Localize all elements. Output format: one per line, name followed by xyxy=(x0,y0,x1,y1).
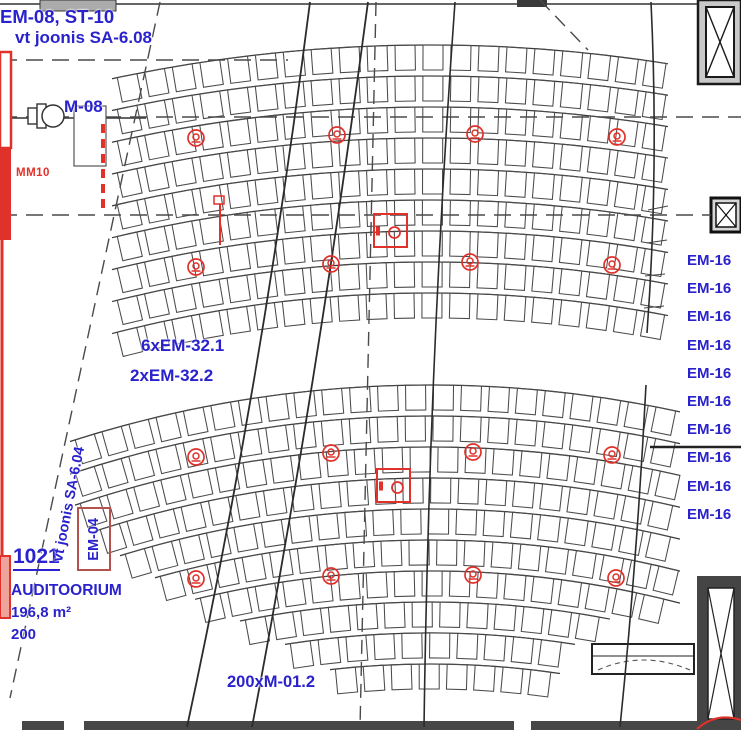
seat xyxy=(283,237,305,264)
seat xyxy=(450,231,471,256)
seat xyxy=(228,87,251,114)
seat xyxy=(485,479,507,505)
seat xyxy=(395,45,415,70)
seat xyxy=(560,82,582,109)
seat-row-line xyxy=(112,262,668,302)
seat xyxy=(464,541,485,567)
seat xyxy=(283,579,306,607)
seat xyxy=(290,641,313,669)
seat xyxy=(134,482,160,511)
seat xyxy=(532,297,554,324)
seat xyxy=(505,78,526,104)
seat xyxy=(624,433,648,461)
label-em04: EM-04 xyxy=(86,518,102,561)
seat xyxy=(450,138,471,163)
seat xyxy=(117,74,142,102)
speaker-symbol xyxy=(470,448,476,454)
seat xyxy=(200,594,225,623)
speaker-symbol xyxy=(613,574,619,580)
seat xyxy=(477,232,498,258)
seat xyxy=(615,150,638,178)
seat xyxy=(145,226,170,255)
em16-label: EM-16 xyxy=(687,506,731,523)
seat xyxy=(440,602,461,627)
seat xyxy=(614,213,637,241)
seat xyxy=(373,510,394,536)
speaker-symbol xyxy=(465,444,481,460)
seat-row-line xyxy=(330,664,560,673)
seat xyxy=(145,195,170,223)
seat xyxy=(456,509,477,535)
seat xyxy=(505,140,526,166)
seat xyxy=(546,547,569,574)
seat xyxy=(648,501,673,530)
seat xyxy=(538,640,561,667)
seat xyxy=(567,487,590,515)
seat xyxy=(533,142,555,169)
floor-box-symbol xyxy=(392,482,403,493)
seat xyxy=(349,418,371,444)
seat xyxy=(511,637,533,664)
seat xyxy=(450,169,471,194)
seat xyxy=(200,60,223,88)
seat xyxy=(449,571,470,597)
seat xyxy=(200,154,224,182)
seat xyxy=(587,209,610,236)
seat xyxy=(655,471,680,500)
red-wall-marker xyxy=(0,556,10,618)
seat xyxy=(317,513,339,540)
seat xyxy=(601,461,625,489)
seat xyxy=(592,522,616,550)
speaker-symbol xyxy=(188,571,204,587)
speaker-symbol xyxy=(609,261,615,267)
seat xyxy=(451,45,472,70)
seat xyxy=(531,576,554,603)
seat xyxy=(477,572,498,598)
seat xyxy=(651,407,676,436)
seat xyxy=(227,181,250,209)
seat xyxy=(283,81,305,108)
m08-device-icon xyxy=(42,105,64,127)
seat xyxy=(533,111,555,138)
seat xyxy=(321,419,343,446)
seat xyxy=(559,238,582,265)
seat xyxy=(266,425,289,452)
seat xyxy=(394,571,415,597)
seat xyxy=(367,77,388,103)
seat xyxy=(569,425,592,452)
seat xyxy=(289,516,312,543)
seat xyxy=(450,107,471,132)
seat xyxy=(488,386,509,412)
seat xyxy=(282,268,305,295)
seat xyxy=(263,488,286,516)
seat xyxy=(505,171,527,197)
seat xyxy=(234,524,258,552)
seat xyxy=(422,200,442,225)
seat xyxy=(271,456,294,483)
seat xyxy=(156,413,181,442)
seat xyxy=(478,77,499,103)
seat xyxy=(533,49,555,75)
seat xyxy=(538,515,561,542)
seat xyxy=(338,233,359,259)
seat xyxy=(560,144,582,171)
seat xyxy=(437,540,457,565)
seat xyxy=(515,388,537,415)
speaker-symbol xyxy=(323,445,339,461)
dashed-diagonal xyxy=(540,0,588,50)
seat xyxy=(520,451,542,478)
seat xyxy=(338,264,360,290)
seat xyxy=(574,457,597,485)
seat xyxy=(483,510,505,536)
seat xyxy=(129,419,155,448)
seat xyxy=(504,264,526,290)
em16-label: EM-16 xyxy=(687,365,731,382)
seat xyxy=(587,147,610,174)
seat xyxy=(172,221,196,249)
em16-label: EM-16 xyxy=(687,252,731,269)
seat xyxy=(242,554,266,582)
floor-plan-viewport[interactable]: EM-08, ST-10 vt joonis SA-6.08 M-08 MM10… xyxy=(0,0,741,730)
stair-tread xyxy=(647,240,667,243)
seat xyxy=(117,264,142,293)
seat xyxy=(255,115,278,142)
seat xyxy=(172,64,196,92)
seat xyxy=(640,311,664,339)
seat xyxy=(236,492,260,520)
seat xyxy=(505,109,526,135)
red-wall-marker xyxy=(0,52,11,148)
seat xyxy=(491,542,513,568)
seat xyxy=(227,212,250,240)
seat-row-line xyxy=(112,293,668,334)
seat xyxy=(255,209,278,236)
seat xyxy=(433,385,453,410)
seat xyxy=(532,173,554,200)
seat xyxy=(172,190,196,218)
seat xyxy=(179,535,204,564)
seat xyxy=(328,605,350,632)
seat xyxy=(423,76,443,101)
seat xyxy=(488,417,509,443)
label-m08: M-08 xyxy=(64,98,103,116)
seat xyxy=(310,297,332,324)
em16-label: EM-16 xyxy=(687,478,731,495)
seat xyxy=(504,574,526,601)
seat xyxy=(619,527,643,555)
seat xyxy=(311,204,333,231)
seat xyxy=(614,182,637,210)
seat xyxy=(532,266,554,293)
seat xyxy=(478,46,499,72)
seat xyxy=(423,169,443,194)
seat xyxy=(228,588,252,616)
beam xyxy=(592,644,694,674)
seat xyxy=(319,482,341,509)
em16-label: EM-16 xyxy=(687,393,731,410)
seat xyxy=(145,163,169,191)
speaker-symbol xyxy=(334,131,340,137)
aisle-curve xyxy=(647,2,654,333)
seat xyxy=(422,293,442,318)
seat xyxy=(450,76,471,101)
seat xyxy=(431,478,451,503)
seat xyxy=(145,258,170,287)
seat xyxy=(367,170,388,196)
seat xyxy=(615,57,638,84)
seat xyxy=(626,560,651,589)
seat xyxy=(318,638,341,665)
speaker-symbol xyxy=(193,453,199,459)
seat xyxy=(338,574,360,601)
seat xyxy=(540,484,563,511)
seat xyxy=(102,458,128,488)
em16-label: EM-16 xyxy=(687,308,731,325)
seat xyxy=(199,311,223,339)
seat xyxy=(457,633,478,659)
seat xyxy=(339,47,360,73)
seat xyxy=(409,540,429,565)
seat xyxy=(335,667,357,694)
seat xyxy=(261,520,285,548)
seat xyxy=(255,271,278,298)
seat xyxy=(570,394,593,421)
bottom-wall xyxy=(84,721,514,730)
seat xyxy=(641,249,665,277)
seat xyxy=(144,290,169,319)
seat xyxy=(378,385,399,411)
seat xyxy=(394,231,414,256)
speaker-symbol xyxy=(188,449,204,465)
seat xyxy=(621,496,645,524)
seat xyxy=(423,138,443,163)
seat xyxy=(245,616,269,644)
em16-label: EM-16 xyxy=(687,337,731,354)
seat xyxy=(206,529,231,558)
seat xyxy=(172,284,196,312)
label-2xem322: 2xEM-32.2 xyxy=(130,367,213,385)
seat xyxy=(433,416,453,441)
seat xyxy=(160,571,186,600)
seat xyxy=(532,235,554,262)
label-mm10: MM10 xyxy=(16,167,50,179)
em16-label: EM-16 xyxy=(687,421,731,438)
seat xyxy=(363,665,385,691)
seat xyxy=(548,610,571,638)
aisle-curve xyxy=(187,2,310,727)
seat xyxy=(188,469,213,498)
seat xyxy=(615,88,638,115)
seat xyxy=(505,233,527,259)
seat xyxy=(477,294,498,320)
seat xyxy=(129,451,155,480)
seat xyxy=(597,429,621,457)
seat xyxy=(403,478,423,503)
label-vt-joonis-sa608: vt joonis SA-6.08 xyxy=(15,29,152,47)
seat xyxy=(423,107,443,132)
seat xyxy=(367,46,388,72)
seat xyxy=(492,449,514,475)
seat xyxy=(532,204,554,231)
label-200xm012: 200xM-01.2 xyxy=(227,674,315,691)
seat xyxy=(513,481,535,508)
seat xyxy=(311,141,333,167)
seat xyxy=(227,275,250,303)
seat xyxy=(311,79,333,105)
floor-box-symbol xyxy=(379,482,383,491)
seat xyxy=(559,300,582,327)
seat xyxy=(243,460,267,488)
seat xyxy=(145,68,169,96)
seat xyxy=(558,580,581,608)
seat xyxy=(338,295,360,321)
seat xyxy=(145,100,169,128)
bottom-wall xyxy=(22,721,64,730)
seat xyxy=(187,565,212,594)
seat xyxy=(401,509,421,534)
seat xyxy=(518,544,540,571)
seat xyxy=(586,303,609,330)
seat xyxy=(460,416,481,442)
floor-box-symbol xyxy=(376,227,380,236)
seat xyxy=(542,422,565,449)
seat xyxy=(588,54,611,81)
seat xyxy=(227,150,250,177)
seat xyxy=(366,232,387,258)
seat xyxy=(325,543,347,570)
seat xyxy=(211,434,235,462)
floor-plan-canvas xyxy=(0,0,741,730)
seat xyxy=(504,295,526,321)
seat xyxy=(501,667,523,694)
seat xyxy=(412,602,432,627)
seat xyxy=(586,272,609,299)
room-name: AUDITOORIUM xyxy=(11,583,122,599)
seat xyxy=(199,279,223,307)
seat xyxy=(266,394,289,421)
seat xyxy=(346,635,368,662)
seat xyxy=(547,453,570,480)
seat xyxy=(597,397,621,425)
seat xyxy=(585,584,609,612)
seat xyxy=(494,604,516,631)
seat xyxy=(384,602,405,628)
seat xyxy=(614,276,638,304)
seat xyxy=(394,293,415,318)
seat xyxy=(255,53,278,80)
seat xyxy=(211,402,235,430)
em16-label: EM-16 xyxy=(687,280,731,297)
seat xyxy=(311,173,333,199)
seat xyxy=(117,327,142,356)
seat xyxy=(594,491,618,519)
em16-label: EM-16 xyxy=(687,449,731,466)
seat xyxy=(395,107,415,132)
seat xyxy=(587,241,610,268)
seat xyxy=(560,175,582,202)
seat xyxy=(450,200,471,225)
seat xyxy=(458,478,479,504)
seat xyxy=(200,91,223,119)
seat xyxy=(102,426,128,455)
seat xyxy=(565,518,588,546)
seat xyxy=(395,76,415,101)
seat xyxy=(377,416,398,442)
seat xyxy=(543,391,566,418)
seat xyxy=(510,512,532,539)
seat xyxy=(125,549,151,579)
seat xyxy=(172,158,196,186)
seat-row-line xyxy=(112,107,668,142)
seat xyxy=(559,269,582,296)
seat xyxy=(145,131,169,159)
seat xyxy=(560,51,582,78)
seat xyxy=(474,665,496,691)
seat xyxy=(423,45,443,70)
seat xyxy=(588,85,611,112)
seat xyxy=(394,200,414,225)
seat xyxy=(575,614,599,642)
seat xyxy=(419,664,439,689)
speaker-symbol xyxy=(328,572,334,578)
seat xyxy=(641,280,665,308)
seat xyxy=(600,555,624,583)
room-capacity: 200 xyxy=(11,627,36,643)
seat xyxy=(422,571,442,596)
seat xyxy=(521,607,544,634)
seat xyxy=(255,84,278,111)
seat xyxy=(227,118,250,145)
bottom-wall xyxy=(531,721,697,730)
seat xyxy=(651,438,676,467)
aisle-curve xyxy=(252,2,368,727)
seat xyxy=(395,138,415,163)
seat xyxy=(573,551,597,579)
seat xyxy=(298,453,321,480)
seat xyxy=(255,178,278,205)
seat xyxy=(354,448,375,474)
seat xyxy=(395,169,415,194)
seat xyxy=(366,572,387,598)
m08-device-icon xyxy=(28,108,37,124)
seat xyxy=(587,178,610,205)
seat-row-line xyxy=(112,138,668,174)
seat xyxy=(406,385,426,410)
seat xyxy=(467,603,488,629)
label-em08-st10: EM-08, ST-10 xyxy=(0,7,114,26)
seat xyxy=(367,108,388,134)
seat-row-line xyxy=(70,385,680,442)
seat xyxy=(172,95,196,123)
seat xyxy=(446,664,467,690)
red-wall-marker xyxy=(0,148,11,240)
seat xyxy=(227,244,250,272)
seat xyxy=(484,635,506,661)
seat xyxy=(560,206,583,233)
seat xyxy=(310,235,332,262)
stair-tread xyxy=(648,206,668,210)
seat xyxy=(478,170,499,196)
seat xyxy=(255,146,278,173)
seat xyxy=(410,447,430,472)
seat xyxy=(374,634,395,660)
room-area: 196,8 m² xyxy=(11,605,71,621)
seat-row-line xyxy=(240,602,610,621)
seat xyxy=(478,139,499,165)
